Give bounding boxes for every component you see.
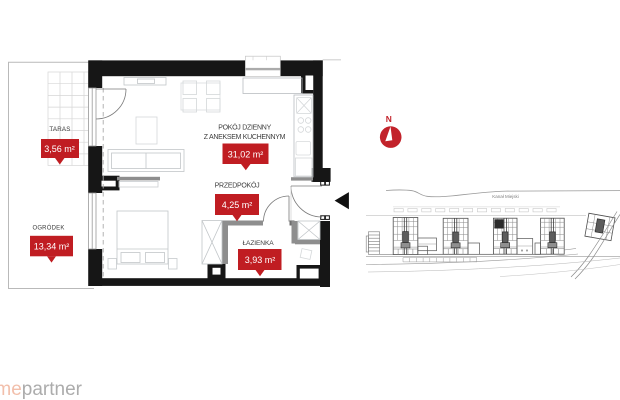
svg-text:N: N — [386, 114, 392, 124]
svg-text:TARAS: TARAS — [49, 126, 70, 133]
svg-text:POKÓJ DZIENNY: POKÓJ DZIENNY — [218, 122, 271, 131]
svg-text:ŁAZIENKA: ŁAZIENKA — [242, 240, 274, 247]
svg-text:mepartner: mepartner — [0, 379, 83, 400]
svg-text:Kanał Miejski: Kanał Miejski — [492, 194, 519, 199]
svg-text:PRZEDPOKÓJ: PRZEDPOKÓJ — [215, 180, 260, 189]
svg-text:13,34 m²: 13,34 m² — [34, 242, 70, 252]
svg-text:4,25 m²: 4,25 m² — [222, 200, 253, 210]
svg-text:31,02 m²: 31,02 m² — [228, 149, 264, 159]
svg-text:OGRÓDEK: OGRÓDEK — [32, 225, 64, 232]
svg-text:Z ANEKSEM KUCHENNYM: Z ANEKSEM KUCHENNYM — [204, 134, 286, 141]
svg-text:3,93 m²: 3,93 m² — [245, 255, 276, 265]
svg-text:3,56 m²: 3,56 m² — [44, 144, 75, 154]
